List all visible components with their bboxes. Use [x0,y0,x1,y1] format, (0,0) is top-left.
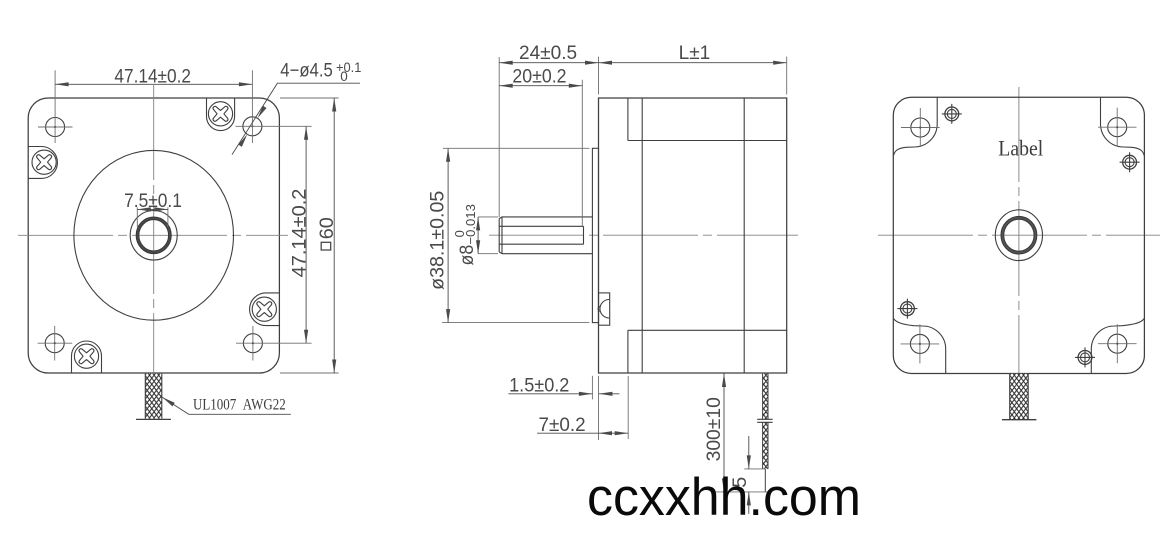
svg-text:Label: Label [998,136,1043,161]
svg-text:20±0.2: 20±0.2 [512,67,566,88]
svg-text:7.5±0.1: 7.5±0.1 [124,191,182,212]
svg-text:300±10: 300±10 [704,397,725,461]
svg-text:47.14±0.2: 47.14±0.2 [114,66,191,87]
svg-text:−0.013: −0.013 [463,204,478,245]
svg-text:L±1: L±1 [679,43,711,64]
svg-text:1.5±0.2: 1.5±0.2 [509,375,569,396]
svg-text:UL1007 AWG22: UL1007 AWG22 [193,397,286,414]
svg-text:0: 0 [340,69,348,84]
svg-text:24±0.5: 24±0.5 [519,43,577,64]
svg-text:47.14±0.2: 47.14±0.2 [290,189,311,278]
svg-text:4−ø4.5: 4−ø4.5 [280,61,333,82]
svg-text:60: 60 [317,217,338,239]
svg-text:7±0.2: 7±0.2 [539,415,586,436]
svg-text:ccxxhh.com: ccxxhh.com [587,468,861,527]
svg-text:ø38.1±0.05: ø38.1±0.05 [428,191,449,290]
svg-text:ø8: ø8 [457,245,478,266]
